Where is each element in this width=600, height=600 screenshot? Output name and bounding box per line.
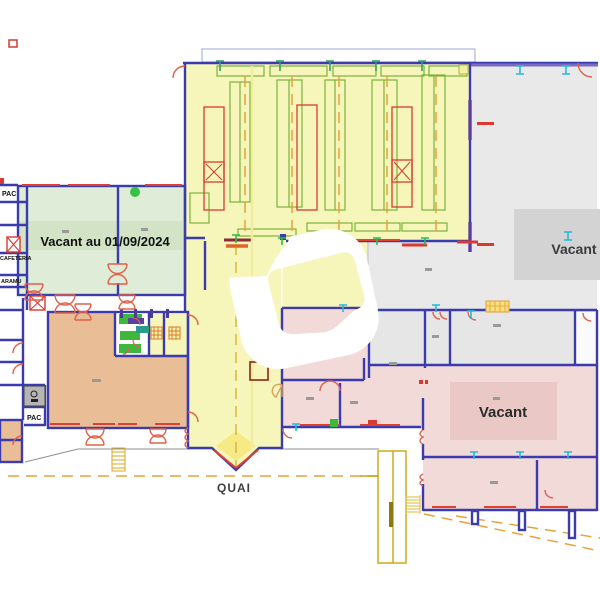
svg-text:Vacant: Vacant	[551, 241, 596, 257]
svg-text:Vacant au 01/09/2024: Vacant au 01/09/2024	[40, 234, 170, 249]
svg-text:QUAI: QUAI	[217, 481, 251, 495]
svg-text:CAFETERIA: CAFETERIA	[0, 256, 32, 262]
svg-text:PAC: PAC	[27, 415, 41, 422]
svg-text:PAC: PAC	[2, 191, 16, 198]
svg-text:Vacant: Vacant	[479, 404, 527, 421]
svg-text:ARAMU: ARAMU	[1, 279, 21, 285]
